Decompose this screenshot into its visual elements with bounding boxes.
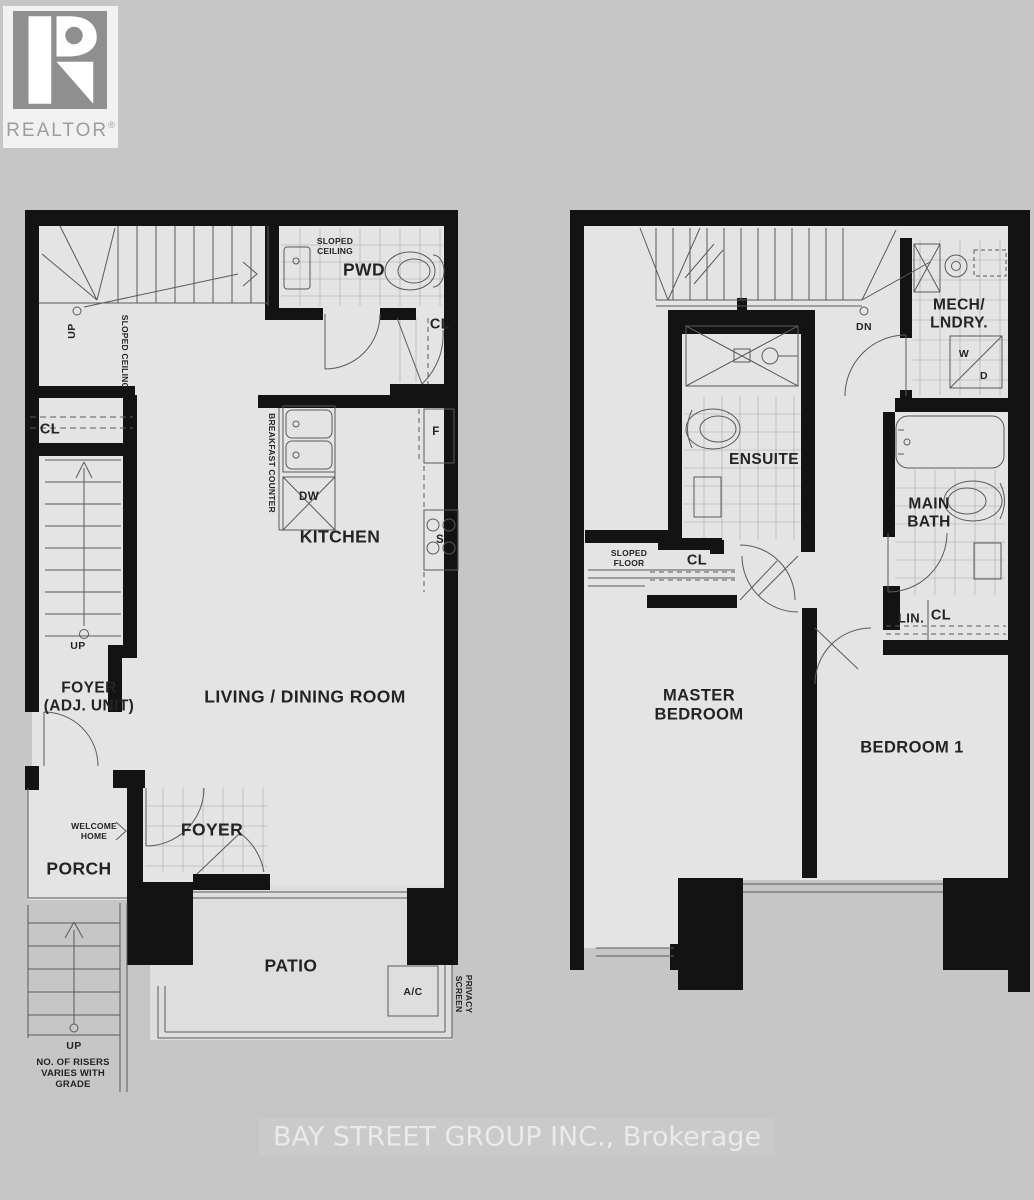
breakfast-counter-label: BREAKFAST COUNTER: [267, 413, 277, 513]
washer-label: W: [959, 348, 969, 360]
privacy-screen-label: PRIVACY SCREEN: [454, 975, 474, 1014]
porch-label: PORCH: [46, 859, 111, 880]
bedroom1-window: [743, 884, 943, 892]
sloped-floor-label: SLOPED FLOOR: [611, 548, 647, 568]
ext-stair-up-label: UP: [66, 1040, 81, 1052]
stove-label: S: [436, 534, 444, 548]
kitchen-label: KITCHEN: [300, 527, 381, 548]
sloped-ceiling-pwd-label: SLOPED CEILING: [317, 236, 353, 256]
bedroom-1-label: BEDROOM 1: [860, 738, 964, 757]
ensuite-label: ENSUITE: [729, 451, 799, 469]
ac-unit-label: A/C: [403, 986, 422, 998]
stair-dn-label: DN: [856, 321, 872, 333]
dryer-label: D: [980, 370, 988, 382]
main-bath-label: MAIN BATH: [907, 496, 951, 533]
welcome-home-label: WELCOME HOME: [71, 821, 117, 841]
foyer-adj-unit-label: FOYER (ADJ. UNIT): [44, 680, 135, 717]
sloped-ceiling-stair-label: SLOPED CEILING: [120, 315, 130, 390]
patio-label: PATIO: [265, 956, 318, 977]
master-bedroom-label: MASTER BEDROOM: [655, 687, 744, 726]
powder-room-label: PWD: [343, 260, 385, 281]
linen-label: LIN.: [898, 610, 924, 625]
closet-linen-label: CL: [931, 607, 951, 624]
fridge-label: F: [432, 426, 439, 440]
closet-hall-label: CL: [687, 552, 707, 569]
risers-note-label: NO. OF RISERS VARIES WITH GRADE: [36, 1057, 109, 1091]
closet-pwd-label: CL: [430, 316, 450, 333]
stair2-up-label: UP: [70, 640, 85, 652]
floorplan-image: REALTOR®: [0, 0, 1034, 1200]
floor1-floor-fill: [28, 217, 452, 1040]
stair-up-label: UP: [66, 323, 78, 338]
foyer-label: FOYER: [181, 820, 243, 841]
dishwasher-label: DW: [299, 491, 319, 505]
master-window: [596, 948, 674, 956]
mech-laundry-label: MECH/ LNDRY.: [930, 297, 988, 334]
living-dining-label: LIVING / DINING ROOM: [204, 687, 405, 708]
closet-left-label: CL: [40, 421, 60, 438]
brokerage-watermark: BAY STREET GROUP INC., Brokerage: [259, 1119, 775, 1156]
floorplan-linework: [0, 0, 1034, 1200]
